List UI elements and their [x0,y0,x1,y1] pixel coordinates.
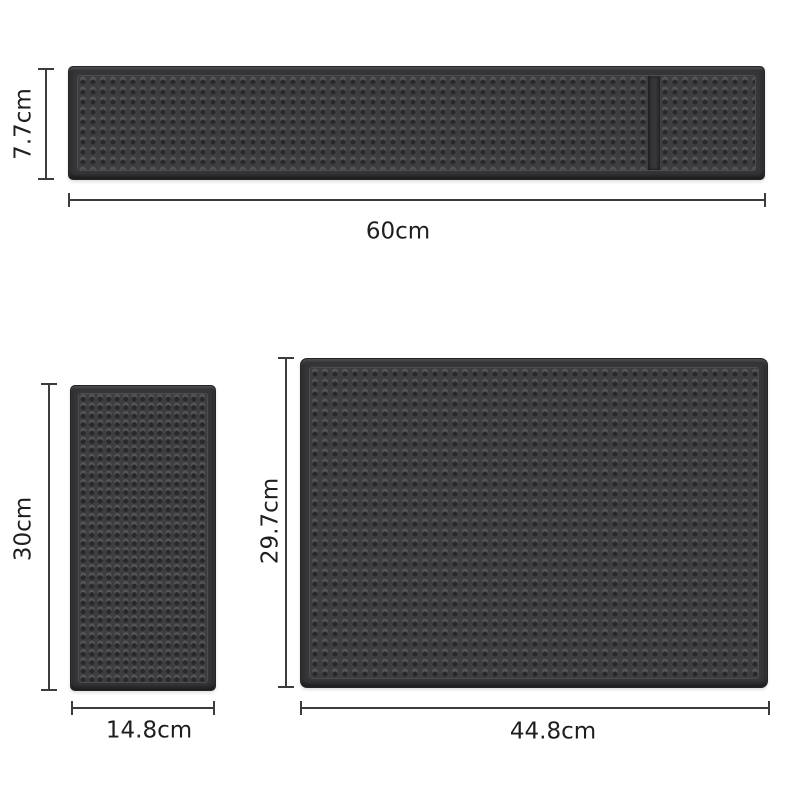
bar-mat-dot-field-end [660,76,755,170]
bar-mat-height-label: 7.7cm [13,88,36,160]
large-mat-width-label: 44.8cm [510,721,596,744]
large-mat-height-label: 29.7cm [260,478,283,564]
bar-mat-width-label: 60cm [366,221,430,244]
large-mat-image [300,358,768,688]
bar-mat-height-dimension-line [45,68,47,180]
bar-mat-dot-field-main [78,76,648,170]
small-mat-height-dimension-line [48,383,50,691]
large-mat-width-dimension-line [300,707,770,709]
large-mat-dot-field [310,368,758,678]
large-mat-height-dimension-line [285,357,287,688]
large-mat-surface [309,367,759,679]
bar-mat-width-dimension-line [68,199,766,201]
small-mat-width-dimension-line [71,707,215,709]
bar-mat-image [68,66,765,180]
bar-mat-divider [648,76,660,170]
small-mat-height-label: 30cm [13,497,36,561]
small-mat-width-label: 14.8cm [106,720,192,743]
small-mat-surface [78,393,208,683]
small-mat-dot-field [79,394,207,682]
bar-mat-surface [77,75,756,171]
small-mat-image [70,385,216,691]
product-dimension-diagram: 7.7cm 60cm 30cm 14.8cm 29.7cm 44.8cm [0,0,800,800]
